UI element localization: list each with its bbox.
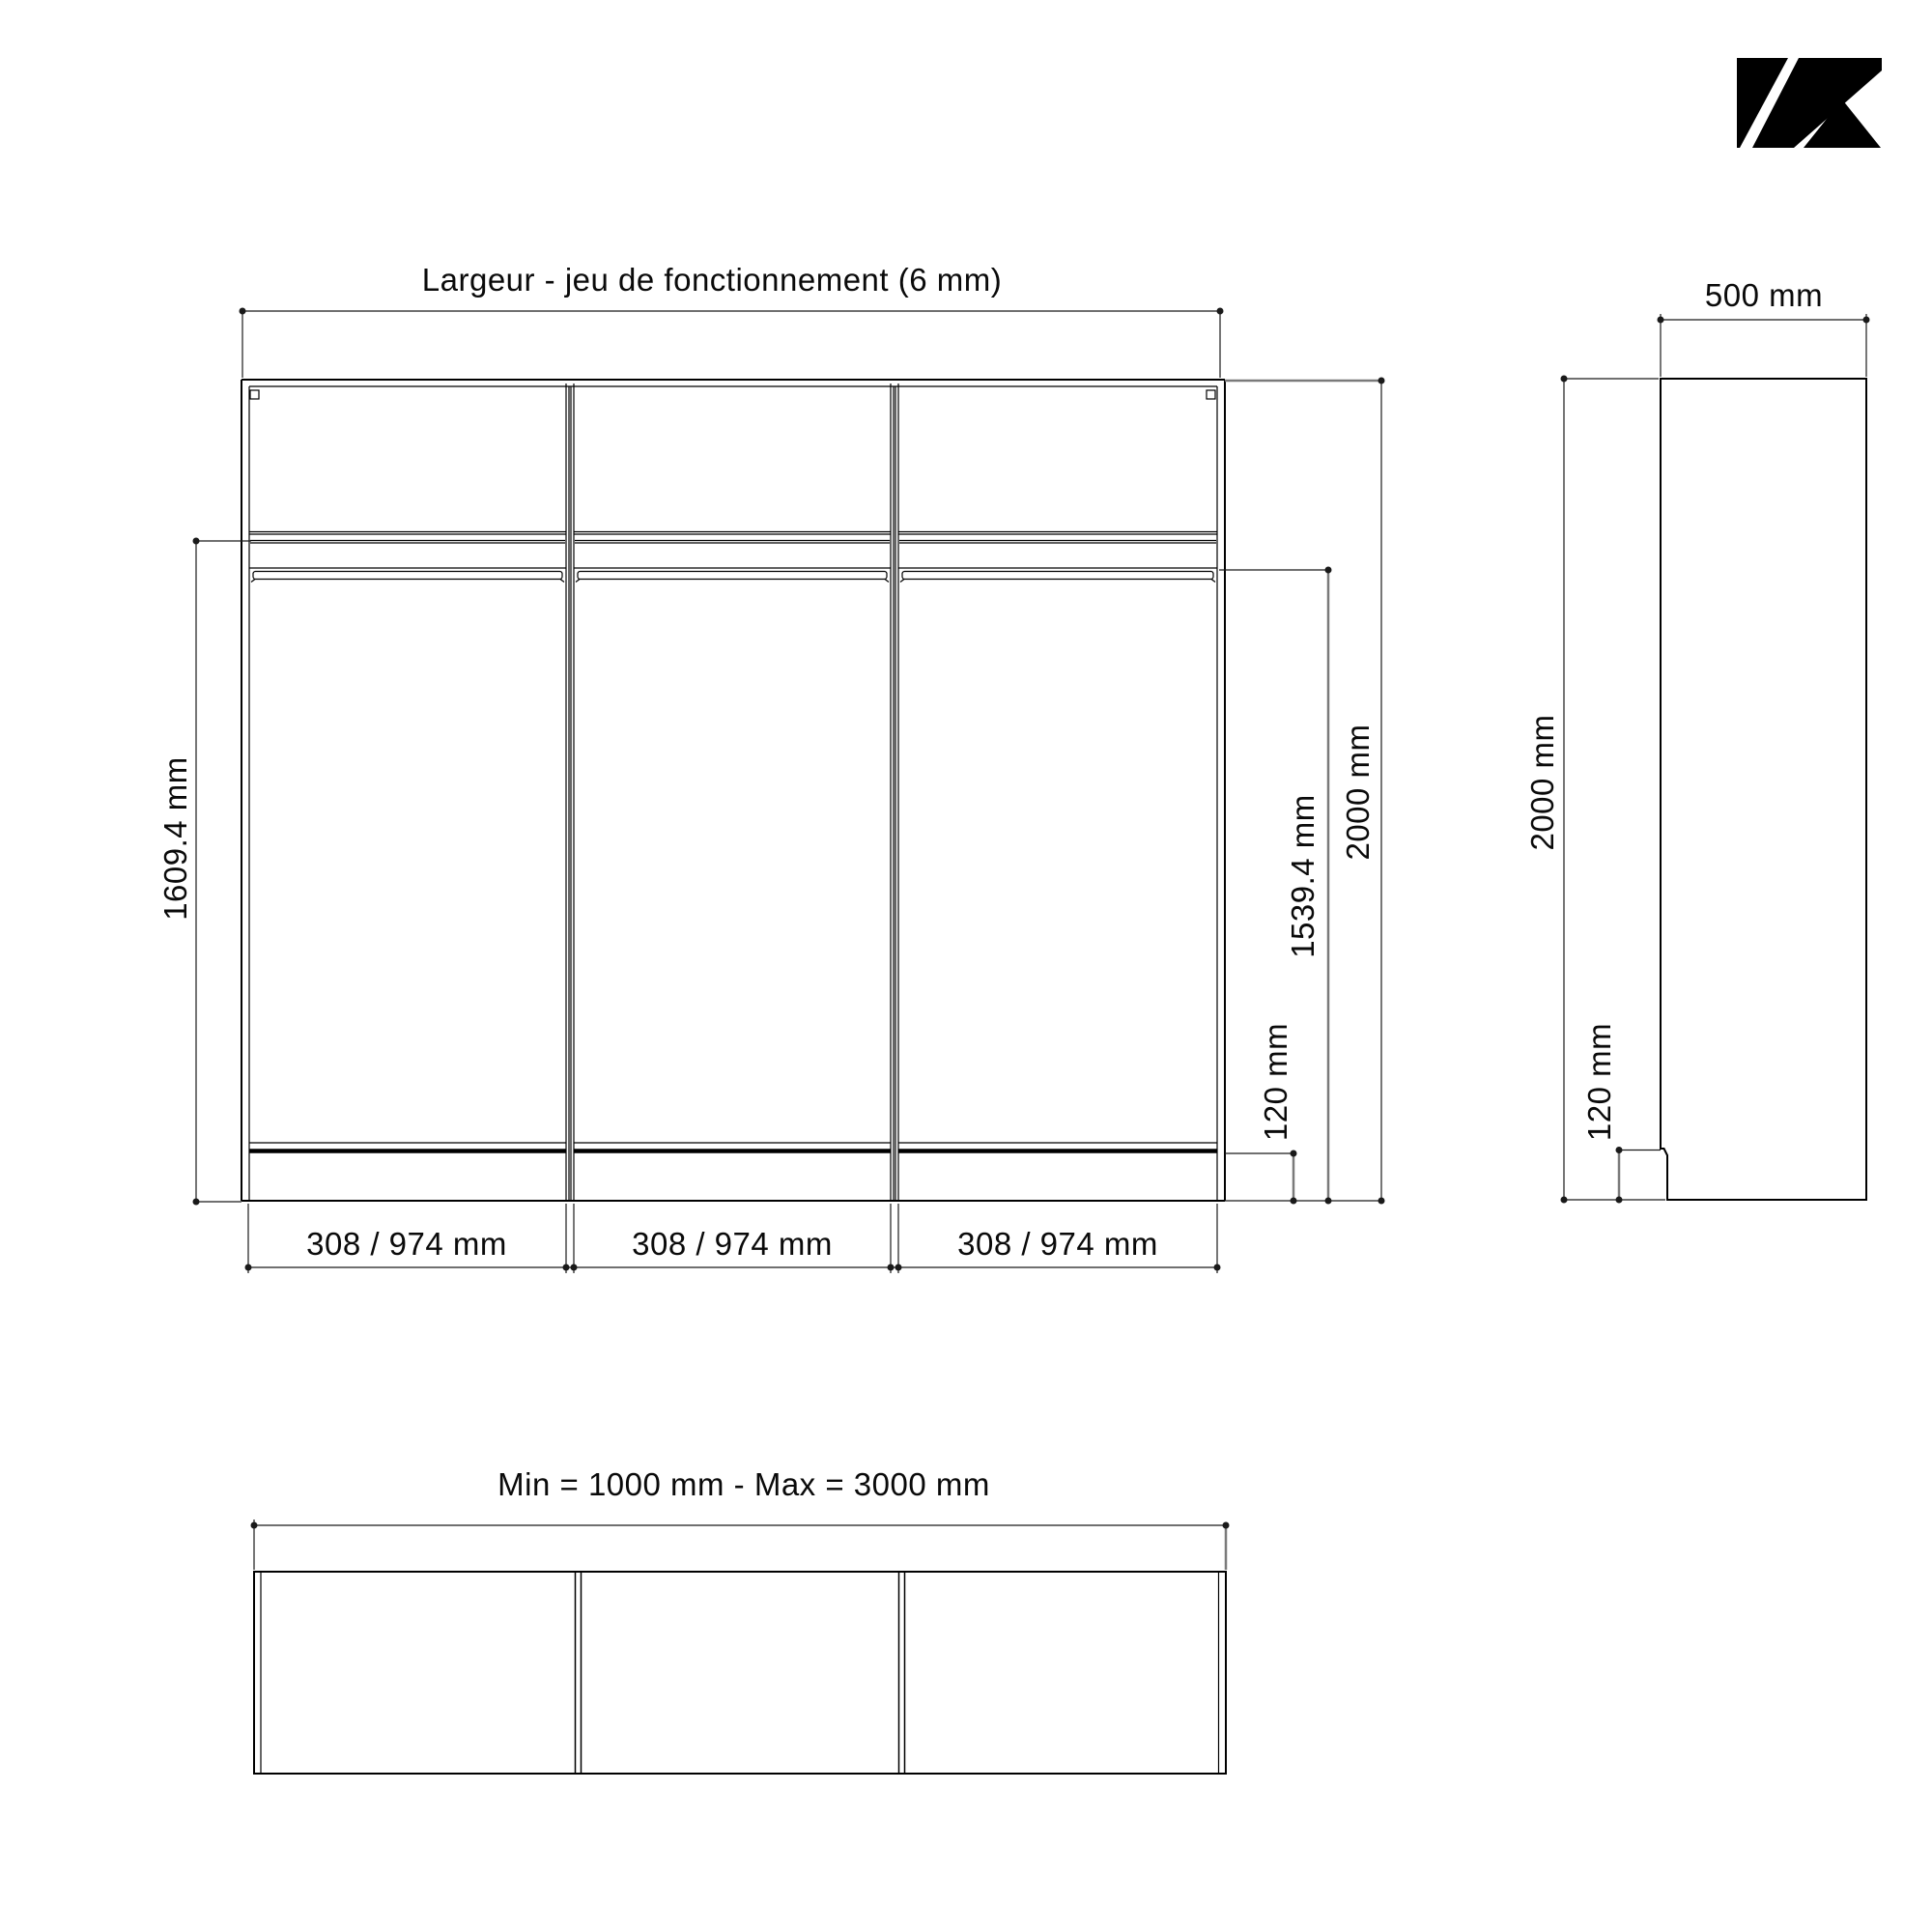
corner-fitting-left <box>250 390 259 399</box>
dim-label-total-height-side: 2000 mm <box>1524 714 1561 850</box>
dim-label-bay-1-width: 308 / 974 mm <box>306 1226 507 1263</box>
bottom-view-drawing <box>254 1572 1226 1774</box>
front-divider-2 <box>891 384 898 1201</box>
front-divider-1 <box>566 384 574 1201</box>
hanging-rail <box>578 572 887 580</box>
brand-logo-icon <box>1737 58 1882 148</box>
dim-label-under-rail-height: 1539.4 mm <box>1285 794 1321 958</box>
side-outline <box>1661 379 1866 1200</box>
front-view-drawing <box>241 380 1225 1201</box>
dim-label-total-height-front: 2000 mm <box>1340 724 1377 860</box>
hanging-rail <box>902 572 1213 580</box>
hanging-rail <box>253 572 562 580</box>
plan-outline <box>254 1572 1226 1774</box>
front-view-dimensions <box>193 308 1385 1274</box>
dim-label-bay-2-width: 308 / 974 mm <box>632 1226 833 1263</box>
dim-largeur <box>240 308 1224 379</box>
front-bay-1 <box>249 532 566 1151</box>
front-bay-2 <box>574 532 891 1151</box>
dim-label-depth-500: 500 mm <box>1705 277 1823 314</box>
dim-label-bay-3-width: 308 / 974 mm <box>957 1226 1158 1263</box>
front-bay-3 <box>898 532 1217 1151</box>
front-carcass-outline <box>241 380 1225 1201</box>
plan-divider-2 <box>899 1572 905 1774</box>
dim-label-plinth-side: 120 mm <box>1581 1023 1618 1141</box>
side-view-drawing <box>1661 379 1866 1200</box>
corner-fitting-right <box>1207 390 1215 399</box>
bottom-view-title: Min = 1000 mm - Max = 3000 mm <box>497 1466 990 1503</box>
front-view-title: Largeur - jeu de fonctionnement (6 mm) <box>422 262 1002 298</box>
dim-120-front <box>1225 1151 1297 1205</box>
plan-divider-1 <box>576 1572 582 1774</box>
dim-500 <box>1658 314 1870 377</box>
dim-120-side <box>1616 1147 1662 1204</box>
bottom-view-dimensions <box>251 1520 1230 1570</box>
technical-drawing-sheet: { "page": { "background": "#ffffff", "li… <box>0 0 1932 1932</box>
dim-label-plinth-front: 120 mm <box>1258 1023 1294 1141</box>
dim-label-interior-height: 1609.4 mm <box>157 756 194 921</box>
